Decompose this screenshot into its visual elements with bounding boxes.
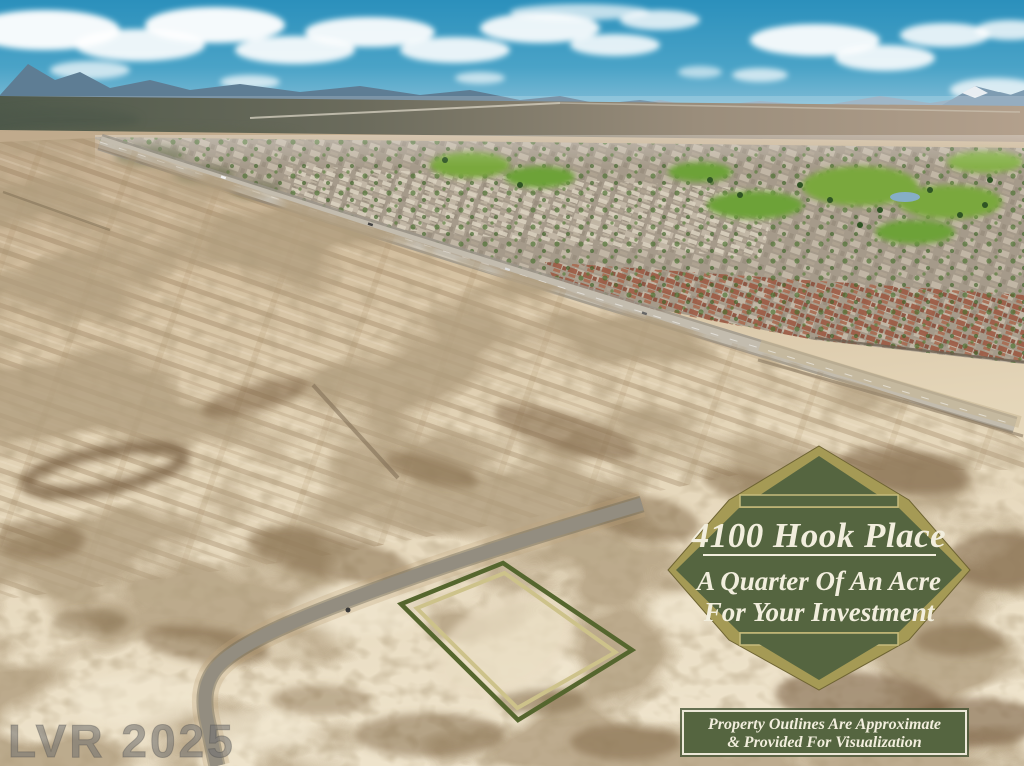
badge-address: 4100 Hook Place <box>691 516 946 555</box>
car-on-road <box>346 608 351 613</box>
pond <box>890 192 920 202</box>
watermark: LVR 2025 <box>8 715 236 766</box>
badge-subtitle-line1: A Quarter Of An Acre <box>695 566 941 596</box>
aerial-photo-canvas: 4100 Hook Place A Quarter Of An Acre For… <box>0 0 1024 766</box>
disclaimer-line1: Property Outlines Are Approximate <box>707 716 941 733</box>
disclaimer-box: Property Outlines Are Approximate & Prov… <box>681 709 968 756</box>
disclaimer-line2: & Provided For Visualization <box>727 734 921 751</box>
badge-top-bar <box>740 495 898 507</box>
badge-subtitle-line2: For Your Investment <box>703 597 936 627</box>
aerial-photo: 4100 Hook Place A Quarter Of An Acre For… <box>0 0 1024 766</box>
